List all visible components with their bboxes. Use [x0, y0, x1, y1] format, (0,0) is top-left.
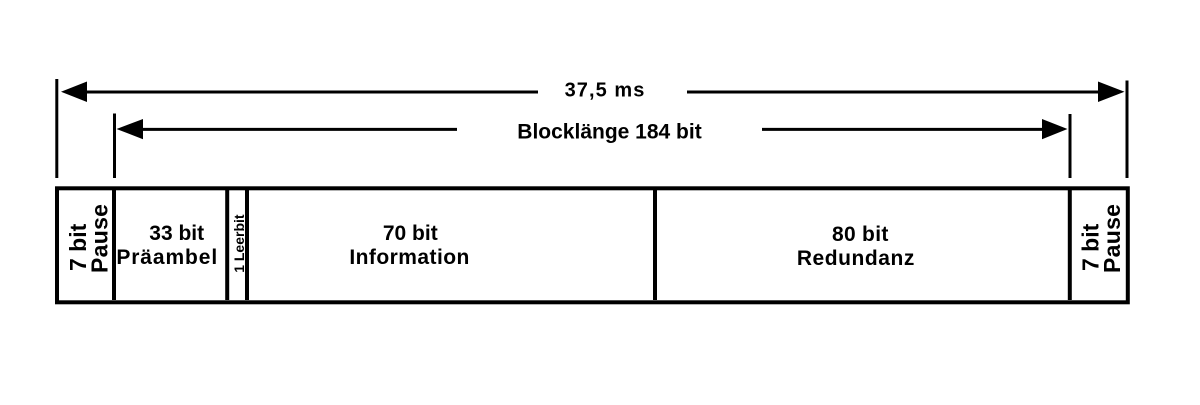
svg-text:Pause: Pause — [87, 204, 113, 273]
svg-text:Präambel: Präambel — [116, 246, 218, 269]
svg-text:70 bit: 70 bit — [383, 222, 438, 245]
svg-text:Pause: Pause — [1099, 204, 1125, 273]
svg-text:Information: Information — [349, 246, 469, 269]
svg-text:37,5 ms: 37,5 ms — [565, 80, 646, 102]
svg-text:1 Leerbit: 1 Leerbit — [231, 214, 247, 273]
svg-text:80 bit: 80 bit — [832, 223, 889, 246]
svg-text:Blocklänge 184 bit: Blocklänge 184 bit — [517, 121, 701, 144]
svg-text:Redundanz: Redundanz — [797, 247, 915, 270]
svg-text:33 bit: 33 bit — [149, 222, 204, 245]
